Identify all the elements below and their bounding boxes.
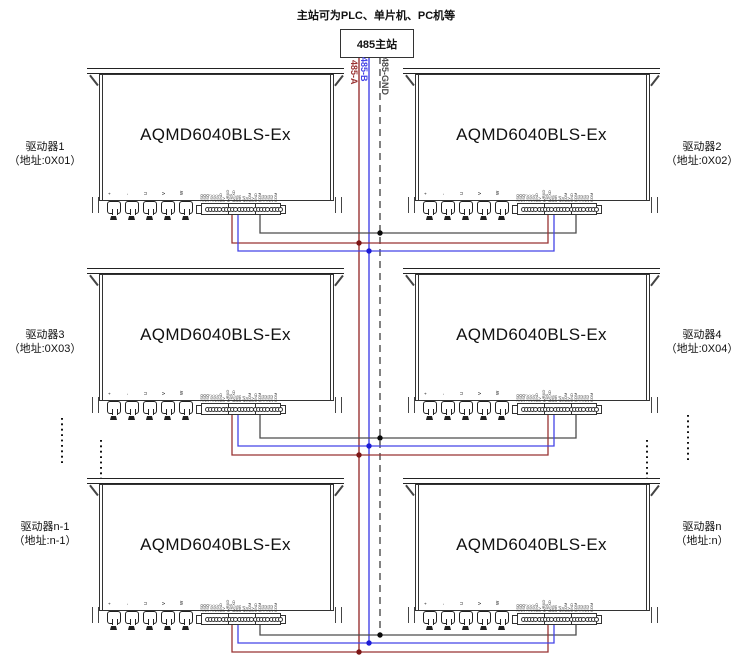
power-terminal xyxy=(423,401,437,414)
power-terminal xyxy=(459,201,473,214)
power-terminal-label: + xyxy=(107,602,112,605)
driver-6-addr: （地址:n） xyxy=(656,534,748,548)
power-terminal-label: U xyxy=(143,602,148,605)
driver-unit-1: AQMD6040BLS-Ex +-UVW 1SQ2SQ3SQ1SV2SV3SVG… xyxy=(87,68,347,220)
flange-strut-right xyxy=(650,485,659,496)
power-terminal xyxy=(459,401,473,414)
driver-3-addr: （地址:0X03） xyxy=(2,342,88,356)
power-terminal xyxy=(441,401,455,414)
pin-label: COM xyxy=(274,393,278,402)
junction-485a xyxy=(356,649,361,654)
power-terminal-label: - xyxy=(125,604,130,606)
signal-terminal-strip xyxy=(201,403,281,415)
power-terminal xyxy=(441,611,455,624)
flange-strut-right xyxy=(650,275,659,286)
flange-strut-right xyxy=(650,75,659,86)
driver-model-label: AQMD6040BLS-Ex xyxy=(415,535,648,555)
power-terminal xyxy=(179,201,193,214)
power-terminal-label: - xyxy=(441,194,446,196)
flange-strut-right xyxy=(334,485,343,496)
power-terminal xyxy=(179,401,193,414)
power-terminal-label: U xyxy=(143,392,148,395)
bottom-bracket-left xyxy=(92,197,99,213)
signal-terminal-strip xyxy=(517,613,597,625)
driver-6-label: 驱动器n （地址:n） xyxy=(656,520,748,548)
power-terminal xyxy=(143,201,157,214)
power-terminal-label: V xyxy=(477,602,482,605)
bus-label-485gnd: 485-GND xyxy=(380,57,390,95)
flange-strut-right xyxy=(334,75,343,86)
driver-model-label: AQMD6040BLS-Ex xyxy=(415,325,648,345)
strip-end-tab xyxy=(512,615,518,624)
power-terminal-label: W xyxy=(179,601,184,605)
power-terminal xyxy=(125,611,139,624)
master-note: 主站可为PLC、单片机、PC机等 xyxy=(246,7,506,23)
flange-strut-left xyxy=(89,75,98,86)
driver-4-label: 驱动器4 （地址:0X04） xyxy=(656,328,748,356)
power-terminal-label: - xyxy=(125,394,130,396)
power-terminal xyxy=(441,201,455,214)
power-terminal xyxy=(495,201,509,214)
bus-label-485b: 485-B xyxy=(359,57,369,82)
flange-strut-left xyxy=(89,485,98,496)
power-terminal-label: W xyxy=(179,391,184,395)
power-terminal-label: + xyxy=(423,392,428,395)
strip-end-tab xyxy=(196,205,202,214)
flange-strut-right xyxy=(334,275,343,286)
bottom-bracket-left xyxy=(408,607,415,623)
bus-label-485a: 485-A xyxy=(349,60,359,85)
flange-strut-left xyxy=(405,75,414,86)
driver-6-name: 驱动器n xyxy=(656,520,748,534)
bottom-bracket-right xyxy=(651,197,658,213)
junction-485gnd xyxy=(377,230,382,235)
power-terminal xyxy=(143,611,157,624)
driver-1-addr: （地址:0X01） xyxy=(2,154,88,168)
power-terminal xyxy=(495,401,509,414)
power-terminal-label: U xyxy=(459,392,464,395)
driver-5-label: 驱动器n-1 （地址:n-1） xyxy=(2,520,88,548)
driver-5-name: 驱动器n-1 xyxy=(2,520,88,534)
driver-unit-6: AQMD6040BLS-Ex +-UVW 1SQ2SQ3SQ1SV2SV3SVG… xyxy=(403,478,663,630)
driver-2-name: 驱动器2 xyxy=(656,140,748,154)
signal-terminal-strip xyxy=(517,203,597,215)
power-terminal xyxy=(161,611,175,624)
power-terminal-label: - xyxy=(441,394,446,396)
power-terminal xyxy=(107,401,121,414)
bottom-bracket-right xyxy=(335,607,342,623)
driver-2-label: 驱动器2 （地址:0X02） xyxy=(656,140,748,168)
flange-strut-left xyxy=(405,275,414,286)
driver-4-name: 驱动器4 xyxy=(656,328,748,342)
power-terminal-label: W xyxy=(495,191,500,195)
signal-terminal-strip xyxy=(517,403,597,415)
power-terminal xyxy=(107,611,121,624)
power-terminal-label: U xyxy=(459,192,464,195)
junction-485b xyxy=(366,640,371,645)
flange-strut-left xyxy=(89,275,98,286)
junction-485b xyxy=(366,443,371,448)
power-terminal-label: + xyxy=(423,602,428,605)
power-terminal-label: W xyxy=(495,391,500,395)
power-terminal-label: W xyxy=(495,601,500,605)
power-terminal-label: - xyxy=(441,604,446,606)
power-terminal xyxy=(423,611,437,624)
driver-model-label: AQMD6040BLS-Ex xyxy=(99,325,332,345)
power-terminal-label: + xyxy=(107,192,112,195)
bottom-bracket-left xyxy=(408,397,415,413)
driver-unit-4: AQMD6040BLS-Ex +-UVW 1SQ2SQ3SQ1SV2SV3SVG… xyxy=(403,268,663,420)
strip-end-tab xyxy=(512,405,518,414)
power-terminal xyxy=(125,401,139,414)
driver-5-addr: （地址:n-1） xyxy=(2,534,88,548)
power-terminal xyxy=(423,201,437,214)
power-terminal xyxy=(477,611,491,624)
power-terminal xyxy=(107,201,121,214)
pin-label: COM xyxy=(590,603,594,612)
power-terminal-label: V xyxy=(161,192,166,195)
driver-model-label: AQMD6040BLS-Ex xyxy=(415,125,648,145)
bottom-bracket-right xyxy=(651,607,658,623)
junction-485b xyxy=(366,248,371,253)
power-terminal xyxy=(143,401,157,414)
junction-485gnd xyxy=(377,632,382,637)
power-terminal-label: V xyxy=(161,602,166,605)
driver-model-label: AQMD6040BLS-Ex xyxy=(99,535,332,555)
bottom-bracket-left xyxy=(408,197,415,213)
power-terminal-label: V xyxy=(161,392,166,395)
junction-485a xyxy=(356,240,361,245)
junction-485gnd xyxy=(377,435,382,440)
branch-485a-row2 xyxy=(232,414,548,455)
driver-1-name: 驱动器1 xyxy=(2,140,88,154)
driver-unit-2: AQMD6040BLS-Ex +-UVW 1SQ2SQ3SQ1SV2SV3SVG… xyxy=(403,68,663,220)
flange-strut-left xyxy=(405,485,414,496)
bottom-bracket-left xyxy=(92,397,99,413)
pin-label: COM xyxy=(274,603,278,612)
diagram-canvas: 主站可为PLC、单片机、PC机等 485主站 485-A 485-B 485-G… xyxy=(0,0,750,669)
power-terminal xyxy=(477,401,491,414)
power-terminal-label: + xyxy=(423,192,428,195)
power-terminal-label: V xyxy=(477,392,482,395)
power-terminal xyxy=(495,611,509,624)
bottom-bracket-right xyxy=(335,397,342,413)
bottom-bracket-left xyxy=(92,607,99,623)
power-terminal-label: U xyxy=(143,192,148,195)
pin-label: COM xyxy=(274,193,278,202)
power-terminal xyxy=(459,611,473,624)
driver-model-label: AQMD6040BLS-Ex xyxy=(99,125,332,145)
signal-terminal-strip xyxy=(201,613,281,625)
strip-end-tab xyxy=(196,405,202,414)
driver-3-name: 驱动器3 xyxy=(2,328,88,342)
power-terminal-label: - xyxy=(125,194,130,196)
pin-label: COM xyxy=(590,393,594,402)
junction-485a xyxy=(356,452,361,457)
driver-2-addr: （地址:0X02） xyxy=(656,154,748,168)
driver-3-label: 驱动器3 （地址:0X03） xyxy=(2,328,88,356)
power-terminal xyxy=(179,611,193,624)
power-terminal xyxy=(161,401,175,414)
power-terminal-label: W xyxy=(179,191,184,195)
strip-end-tab xyxy=(196,615,202,624)
master-station-box: 485主站 xyxy=(340,29,414,58)
power-terminal-label: U xyxy=(459,602,464,605)
driver-unit-5: AQMD6040BLS-Ex +-UVW 1SQ2SQ3SQ1SV2SV3SVG… xyxy=(87,478,347,630)
driver-1-label: 驱动器1 （地址:0X01） xyxy=(2,140,88,168)
strip-end-tab xyxy=(512,205,518,214)
power-terminal xyxy=(125,201,139,214)
signal-terminal-strip xyxy=(201,203,281,215)
bottom-bracket-right xyxy=(651,397,658,413)
driver-unit-3: AQMD6040BLS-Ex +-UVW 1SQ2SQ3SQ1SV2SV3SVG… xyxy=(87,268,347,420)
driver-4-addr: （地址:0X04） xyxy=(656,342,748,356)
power-terminal xyxy=(477,201,491,214)
power-terminal-label: V xyxy=(477,192,482,195)
power-terminal xyxy=(161,201,175,214)
power-terminal-label: + xyxy=(107,392,112,395)
bottom-bracket-right xyxy=(335,197,342,213)
master-station-label: 485主站 xyxy=(357,36,397,52)
pin-label: COM xyxy=(590,193,594,202)
